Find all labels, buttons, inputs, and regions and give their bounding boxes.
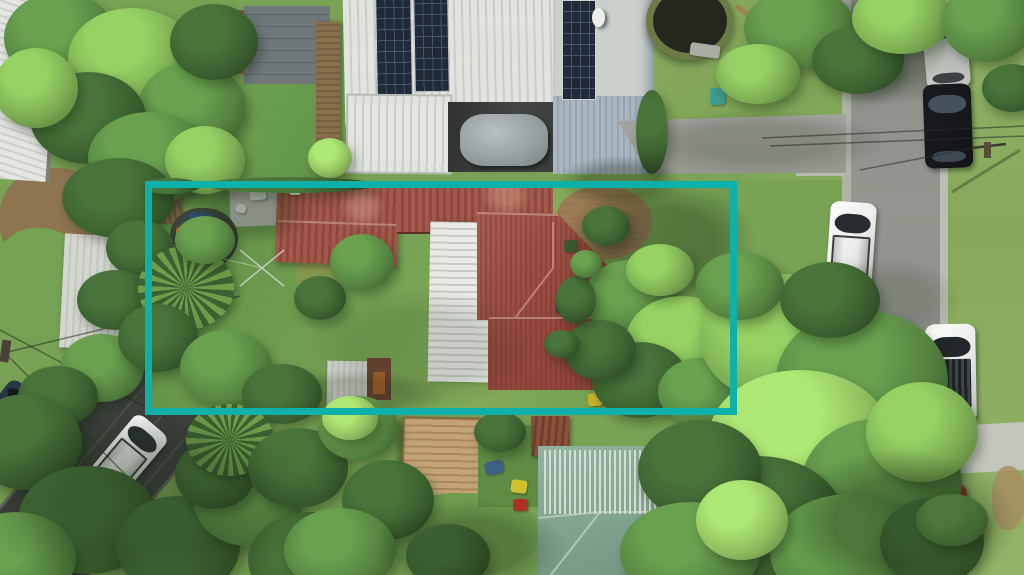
green-roof-ridges — [538, 446, 728, 575]
green-roof-house — [538, 446, 728, 575]
aerial-photo — [0, 0, 1024, 575]
lot-boundary-overlay — [145, 181, 737, 415]
